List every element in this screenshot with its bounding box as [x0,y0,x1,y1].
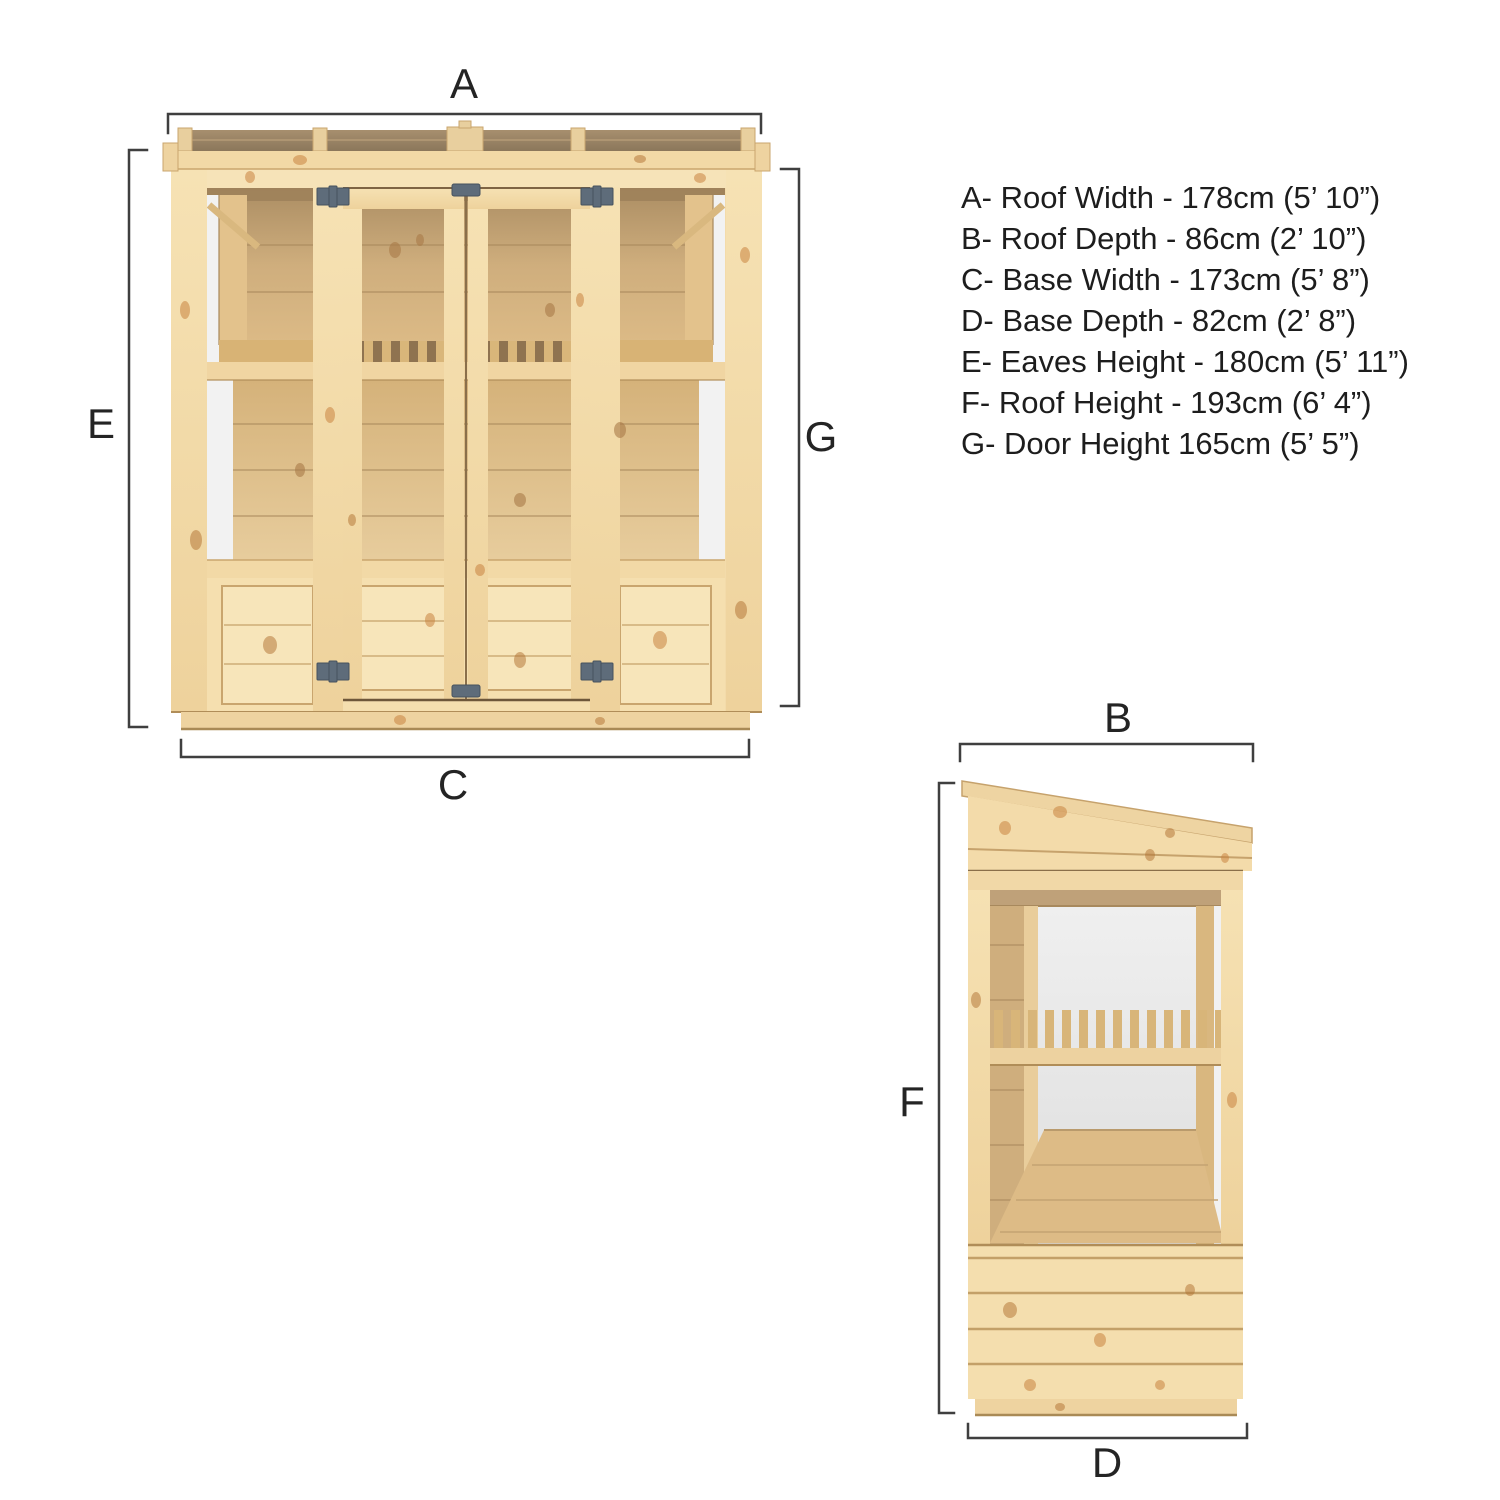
door-hinge-bottom-right [581,661,613,682]
dim-label-base-depth: D [1092,1439,1122,1486]
product-dimension-diagram: A E G C [0,0,1500,1500]
legend-item-door-height: G- Door Height 165cm (5’ 5”) [961,423,1409,464]
door-hinge-bottom-left [317,661,349,682]
front-roof [163,121,770,171]
legend-item-roof-height: F- Roof Height - 193cm (6’ 4”) [961,382,1409,423]
dim-bracket-roof-height [939,783,954,1413]
dim-bracket-base-depth [968,1424,1247,1438]
front-elevation-view: A E G C [87,60,837,808]
door-latch-bottom [452,685,480,697]
dim-label-roof-width: A [450,60,478,107]
front-fascia [167,151,766,169]
side-elevation-view: B F D [899,694,1253,1486]
roof-ridge-cap [447,127,483,151]
dimensions-legend: A- Roof Width - 178cm (5’ 10”) B- Roof D… [961,177,1409,464]
dim-label-eaves-height: E [87,400,115,447]
side-cladding [968,1245,1243,1399]
door-hinge-top-left [317,186,349,207]
legend-item-base-width: C- Base Width - 173cm (5’ 8”) [961,259,1409,300]
dim-label-roof-height: F [899,1078,925,1125]
side-shelf-edge [988,1048,1223,1065]
door-latch-top [452,184,480,196]
door-hinge-top-right [581,186,613,207]
dim-bracket-base-width [181,740,749,757]
dim-bracket-door-height [781,169,799,706]
dim-bracket-eaves-height [129,150,147,727]
legend-item-roof-width: A- Roof Width - 178cm (5’ 10”) [961,177,1409,218]
legend-item-base-depth: D- Base Depth - 82cm (2’ 8”) [961,300,1409,341]
side-base [975,1399,1237,1415]
legend-item-eaves-height: E- Eaves Height - 180cm (5’ 11”) [961,341,1409,382]
dim-label-roof-depth: B [1104,694,1132,741]
dim-label-base-width: C [438,761,468,808]
dim-label-door-height: G [805,413,838,460]
legend-item-roof-depth: B- Roof Depth - 86cm (2’ 10”) [961,218,1409,259]
front-base-sill [181,712,750,729]
dim-bracket-roof-depth [960,744,1253,761]
side-glazing-interior [988,888,1224,1245]
